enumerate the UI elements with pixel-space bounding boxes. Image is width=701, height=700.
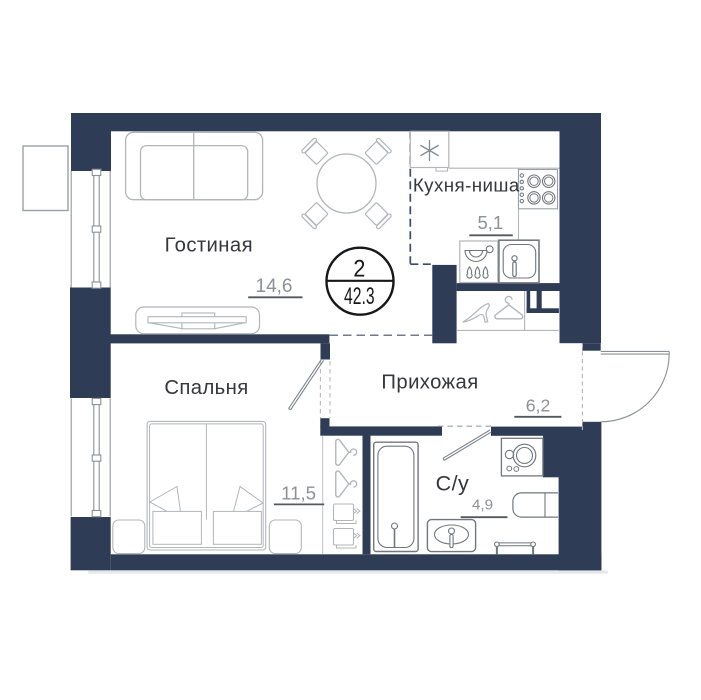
svg-text:С/у: С/у	[436, 472, 469, 496]
svg-text:42.3: 42.3	[344, 282, 374, 309]
svg-text:2: 2	[353, 254, 365, 282]
svg-text:Прихожая: Прихожая	[381, 372, 478, 394]
svg-text:5,1: 5,1	[477, 212, 503, 233]
svg-text:14,6: 14,6	[256, 276, 293, 297]
svg-text:Спальня: Спальня	[164, 377, 248, 399]
svg-text:6,2: 6,2	[526, 395, 551, 415]
svg-text:4,9: 4,9	[472, 497, 493, 514]
svg-text:11,5: 11,5	[281, 482, 316, 503]
svg-text:Кухня-ниша: Кухня-ниша	[413, 174, 520, 195]
svg-text:Гостиная: Гостиная	[165, 234, 253, 256]
